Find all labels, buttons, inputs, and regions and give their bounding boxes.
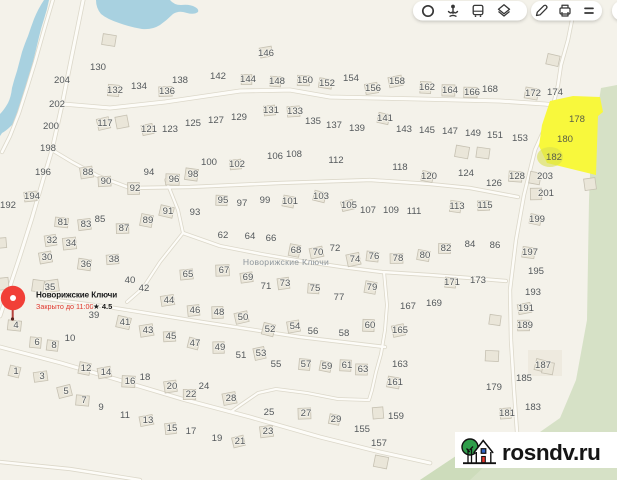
svg-text:94: 94 — [144, 167, 155, 178]
svg-text:112: 112 — [328, 155, 343, 166]
svg-text:48: 48 — [214, 307, 225, 318]
svg-text:144: 144 — [240, 74, 257, 85]
svg-text:154: 154 — [343, 73, 360, 84]
svg-text:134: 134 — [131, 81, 148, 92]
svg-text:34: 34 — [66, 238, 77, 249]
svg-text:rosndv.ru: rosndv.ru — [502, 440, 601, 465]
svg-text:39: 39 — [89, 310, 100, 321]
svg-text:182: 182 — [546, 152, 562, 163]
svg-text:77: 77 — [334, 292, 345, 303]
svg-text:161: 161 — [387, 377, 403, 388]
svg-text:171: 171 — [444, 277, 460, 288]
svg-text:165: 165 — [392, 325, 408, 336]
svg-text:101: 101 — [282, 196, 298, 207]
svg-text:199: 199 — [529, 214, 545, 225]
svg-text:Новорижские Ключи: Новорижские Ключи — [36, 291, 117, 300]
svg-text:36: 36 — [81, 259, 92, 270]
svg-text:106: 106 — [267, 151, 283, 162]
svg-text:60: 60 — [365, 320, 376, 331]
svg-text:29: 29 — [331, 414, 342, 425]
svg-text:14: 14 — [101, 367, 112, 378]
svg-text:32: 32 — [47, 235, 58, 246]
svg-text:185: 185 — [516, 373, 532, 384]
svg-text:138: 138 — [172, 75, 188, 86]
svg-text:73: 73 — [280, 278, 291, 289]
svg-text:148: 148 — [269, 76, 285, 87]
svg-text:202: 202 — [49, 99, 65, 110]
svg-text:24: 24 — [199, 381, 210, 392]
svg-text:142: 142 — [210, 71, 226, 82]
svg-text:27: 27 — [301, 408, 312, 419]
svg-text:113: 113 — [449, 201, 464, 212]
svg-text:178: 178 — [569, 114, 585, 125]
svg-text:192: 192 — [0, 200, 16, 211]
svg-text:158: 158 — [389, 76, 405, 87]
svg-text:147: 147 — [442, 126, 458, 137]
svg-text:56: 56 — [308, 326, 319, 337]
svg-text:168: 168 — [482, 84, 498, 95]
svg-text:8: 8 — [51, 340, 56, 351]
svg-text:150: 150 — [297, 75, 313, 86]
svg-text:137: 137 — [326, 120, 342, 131]
svg-text:Закрыто до 11:00: Закрыто до 11:00 — [36, 302, 94, 311]
svg-text:120: 120 — [421, 171, 437, 182]
svg-text:105: 105 — [341, 200, 357, 211]
svg-text:128: 128 — [509, 171, 525, 182]
svg-text:53: 53 — [256, 348, 267, 359]
svg-text:117: 117 — [97, 118, 112, 129]
svg-text:172: 172 — [525, 88, 541, 99]
svg-text:6: 6 — [34, 337, 39, 348]
svg-text:74: 74 — [350, 254, 361, 265]
svg-text:65: 65 — [183, 269, 194, 280]
svg-text:95: 95 — [218, 195, 229, 206]
svg-text:★ 4.5: ★ 4.5 — [93, 302, 112, 311]
svg-text:97: 97 — [237, 198, 248, 209]
svg-text:89: 89 — [143, 215, 154, 226]
svg-text:42: 42 — [139, 283, 150, 294]
svg-text:71: 71 — [261, 281, 272, 292]
svg-text:78: 78 — [393, 253, 404, 264]
svg-text:163: 163 — [392, 359, 408, 370]
svg-text:187: 187 — [535, 360, 551, 371]
svg-text:46: 46 — [190, 305, 201, 316]
svg-text:3: 3 — [39, 371, 44, 382]
svg-text:54: 54 — [290, 321, 301, 332]
svg-text:98: 98 — [188, 169, 199, 180]
svg-text:123: 123 — [162, 124, 178, 135]
svg-text:68: 68 — [291, 245, 302, 256]
svg-text:7: 7 — [81, 395, 86, 406]
svg-text:129: 129 — [231, 112, 247, 123]
svg-text:149: 149 — [465, 128, 481, 139]
svg-text:91: 91 — [163, 206, 174, 217]
svg-text:153: 153 — [512, 133, 528, 144]
svg-text:156: 156 — [365, 83, 381, 94]
svg-text:67: 67 — [219, 265, 230, 276]
svg-text:146: 146 — [258, 48, 274, 59]
svg-text:204: 204 — [54, 75, 71, 86]
svg-text:99: 99 — [260, 195, 271, 206]
svg-text:45: 45 — [166, 331, 177, 342]
svg-text:21: 21 — [235, 436, 246, 447]
svg-text:63: 63 — [358, 364, 369, 375]
svg-text:127: 127 — [208, 115, 224, 126]
svg-text:164: 164 — [442, 85, 459, 96]
svg-text:90: 90 — [101, 176, 112, 187]
svg-text:109: 109 — [383, 205, 399, 216]
svg-text:82: 82 — [441, 243, 452, 254]
svg-text:108: 108 — [286, 149, 302, 160]
svg-text:198: 198 — [40, 143, 56, 154]
svg-text:100: 100 — [201, 157, 217, 168]
svg-text:197: 197 — [522, 247, 538, 258]
svg-text:76: 76 — [369, 251, 380, 262]
svg-text:15: 15 — [167, 423, 178, 434]
svg-text:83: 83 — [81, 219, 92, 230]
svg-text:85: 85 — [95, 214, 106, 225]
svg-text:166: 166 — [464, 87, 480, 98]
svg-text:151: 151 — [487, 130, 503, 141]
svg-text:22: 22 — [186, 389, 197, 400]
svg-text:136: 136 — [159, 86, 175, 97]
svg-text:195: 195 — [528, 266, 544, 277]
svg-text:86: 86 — [490, 240, 501, 251]
svg-text:69: 69 — [243, 272, 254, 283]
svg-text:41: 41 — [120, 317, 131, 328]
svg-text:58: 58 — [339, 328, 350, 339]
svg-text:162: 162 — [419, 82, 435, 93]
svg-text:40: 40 — [125, 275, 136, 286]
svg-text:130: 130 — [90, 62, 106, 73]
svg-text:200: 200 — [43, 121, 59, 132]
svg-text:141: 141 — [377, 113, 393, 124]
svg-text:55: 55 — [271, 359, 282, 370]
svg-text:49: 49 — [215, 342, 226, 353]
svg-text:152: 152 — [319, 78, 335, 89]
svg-text:50: 50 — [238, 312, 249, 323]
svg-text:59: 59 — [322, 361, 333, 372]
svg-text:52: 52 — [265, 324, 276, 335]
svg-text:80: 80 — [420, 250, 431, 261]
svg-text:28: 28 — [226, 393, 237, 404]
svg-text:16: 16 — [125, 376, 136, 387]
svg-text:87: 87 — [119, 223, 130, 234]
svg-text:194: 194 — [24, 191, 41, 202]
svg-text:179: 179 — [486, 382, 502, 393]
svg-text:66: 66 — [266, 233, 277, 244]
svg-text:201: 201 — [538, 188, 554, 199]
svg-text:72: 72 — [330, 243, 341, 254]
svg-text:13: 13 — [143, 415, 154, 426]
svg-text:1: 1 — [13, 366, 18, 377]
svg-text:181: 181 — [499, 408, 515, 419]
svg-text:75: 75 — [310, 283, 321, 294]
svg-text:44: 44 — [164, 295, 175, 306]
svg-text:18: 18 — [140, 372, 151, 383]
svg-text:131: 131 — [263, 105, 279, 116]
svg-text:143: 143 — [396, 124, 412, 135]
svg-text:5: 5 — [63, 386, 68, 397]
svg-text:88: 88 — [83, 167, 94, 178]
svg-text:125: 125 — [185, 118, 201, 129]
svg-text:51: 51 — [236, 350, 247, 361]
svg-text:174: 174 — [547, 87, 564, 98]
svg-text:183: 183 — [525, 402, 541, 413]
svg-text:93: 93 — [190, 207, 201, 218]
svg-text:30: 30 — [42, 252, 53, 263]
svg-text:11: 11 — [120, 410, 130, 421]
svg-text:135: 135 — [305, 116, 321, 127]
svg-text:4: 4 — [13, 320, 19, 331]
svg-text:92: 92 — [130, 183, 141, 194]
svg-text:102: 102 — [229, 159, 245, 170]
svg-text:145: 145 — [419, 125, 435, 136]
svg-text:167: 167 — [400, 301, 416, 312]
svg-text:193: 193 — [525, 287, 541, 298]
svg-text:103: 103 — [313, 191, 329, 202]
svg-text:173: 173 — [470, 275, 486, 286]
svg-text:196: 196 — [35, 167, 51, 178]
svg-text:20: 20 — [167, 381, 178, 392]
svg-text:Новорижские Ключи: Новорижские Ключи — [243, 257, 329, 267]
svg-text:126: 126 — [486, 178, 502, 189]
svg-text:9: 9 — [98, 402, 103, 413]
svg-text:155: 155 — [354, 424, 370, 435]
svg-text:121: 121 — [141, 124, 157, 135]
svg-text:124: 124 — [458, 168, 475, 179]
svg-text:25: 25 — [264, 407, 275, 418]
svg-text:57: 57 — [301, 359, 312, 370]
svg-text:115: 115 — [477, 200, 492, 211]
svg-text:133: 133 — [287, 106, 303, 117]
svg-text:169: 169 — [426, 298, 442, 309]
svg-text:111: 111 — [407, 206, 422, 217]
svg-text:96: 96 — [169, 174, 180, 185]
svg-text:81: 81 — [58, 217, 69, 228]
svg-text:23: 23 — [263, 426, 274, 437]
svg-text:43: 43 — [143, 325, 154, 336]
svg-text:17: 17 — [186, 426, 197, 437]
svg-text:84: 84 — [465, 239, 476, 250]
svg-text:132: 132 — [107, 85, 123, 96]
svg-text:10: 10 — [65, 333, 76, 344]
svg-text:61: 61 — [342, 360, 353, 371]
svg-text:19: 19 — [212, 433, 223, 444]
svg-text:118: 118 — [392, 162, 407, 173]
svg-text:79: 79 — [367, 282, 378, 293]
svg-text:180: 180 — [557, 134, 573, 145]
svg-text:139: 139 — [349, 123, 365, 134]
svg-text:107: 107 — [360, 205, 376, 216]
svg-text:62: 62 — [218, 230, 229, 241]
svg-text:157: 157 — [371, 438, 387, 449]
svg-text:191: 191 — [518, 303, 534, 314]
svg-text:12: 12 — [81, 363, 92, 374]
svg-text:189: 189 — [517, 320, 533, 331]
svg-text:38: 38 — [109, 254, 120, 265]
svg-text:64: 64 — [245, 231, 256, 242]
svg-text:47: 47 — [190, 338, 201, 349]
svg-text:203: 203 — [537, 171, 553, 182]
svg-text:159: 159 — [388, 411, 404, 422]
